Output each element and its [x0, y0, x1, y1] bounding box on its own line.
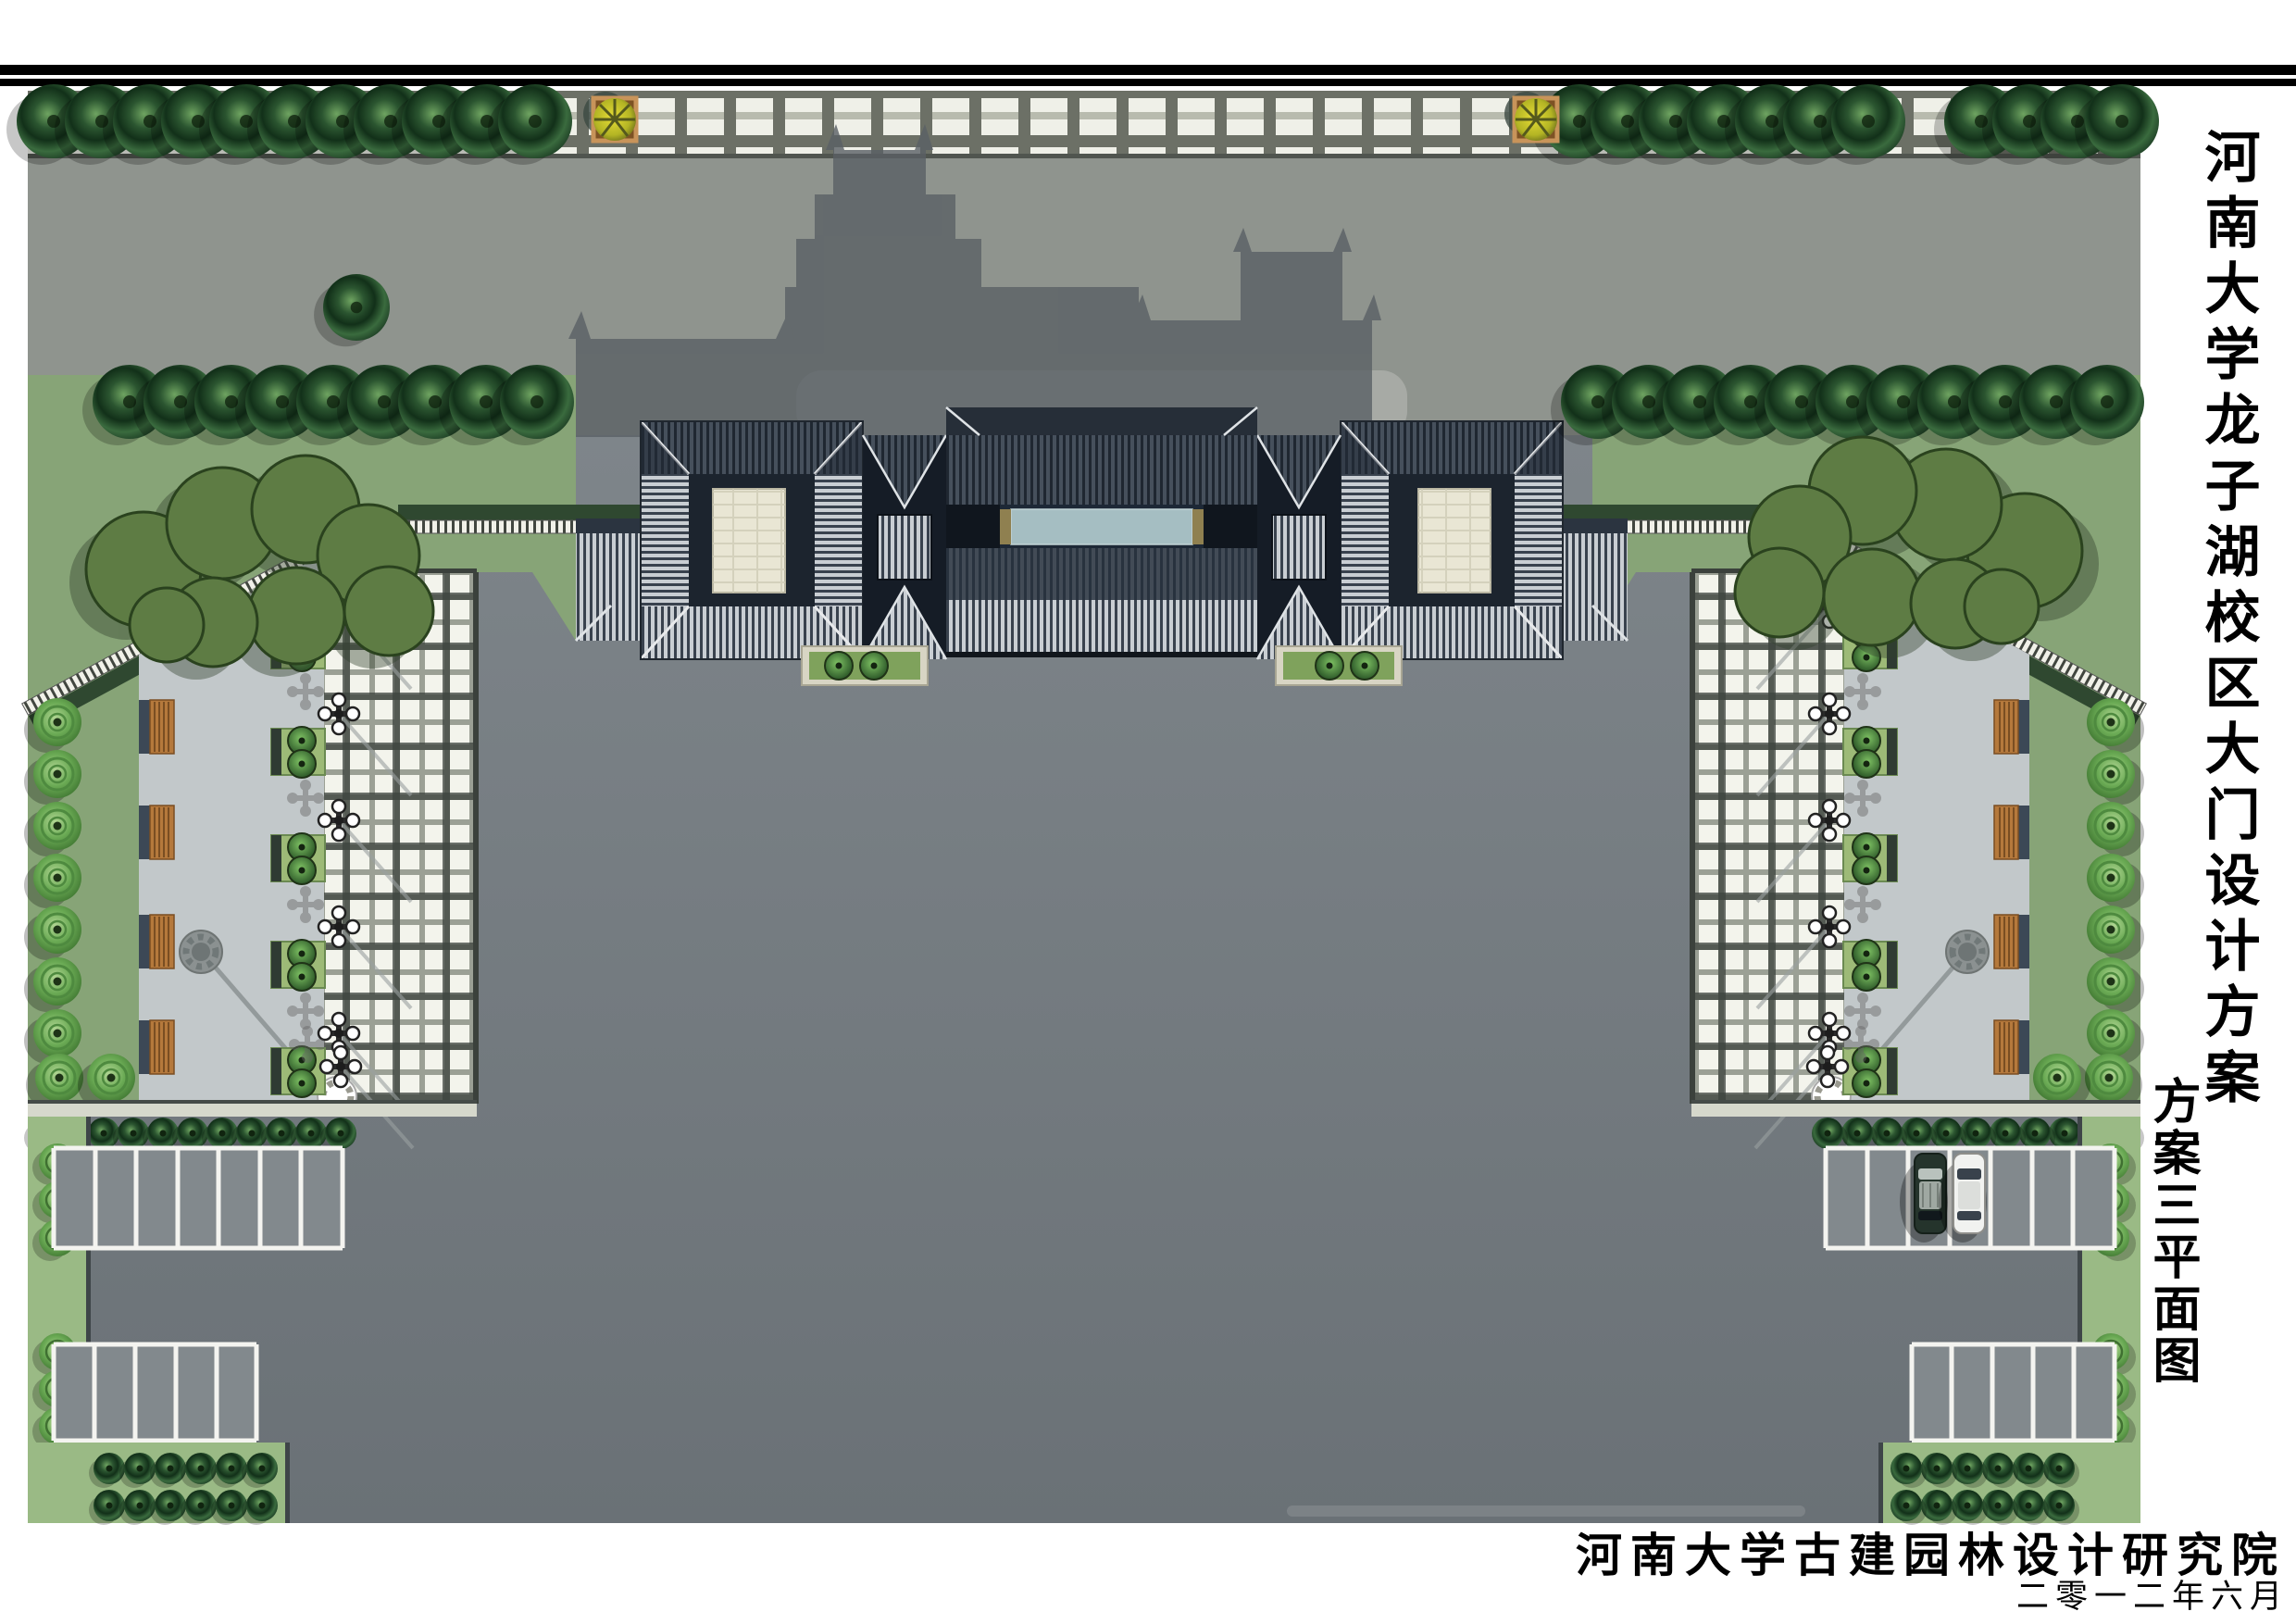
gate-central-hall [946, 407, 1257, 657]
gate-passage [863, 435, 946, 659]
watermark-smudge [1287, 1505, 1805, 1517]
site-plan [6, 84, 2159, 1525]
scheme-label: 方案三平面图 [2138, 1076, 2207, 1387]
yellow-tree-west [583, 92, 636, 141]
parking-stalls-lower [54, 1343, 256, 1443]
frame-rule-1 [0, 65, 2296, 75]
sheet-date: 二零一二年六月 [2016, 1570, 2289, 1618]
parking-stalls-upper [54, 1146, 343, 1250]
gate-pavilion [641, 421, 863, 659]
gate-planter [802, 646, 928, 685]
site-plan-svg [0, 0, 2296, 1624]
sheet-title: 河南大学龙子湖校区大门设计方案 [2188, 128, 2268, 1114]
pool-skylight [1011, 509, 1192, 544]
yellow-tree-east [1504, 92, 1557, 141]
drawing-sheet: 河南大学龙子湖校区大门设计方案 方案三平面图 河南大学古建园林设计研究院 二零一… [0, 0, 2296, 1624]
